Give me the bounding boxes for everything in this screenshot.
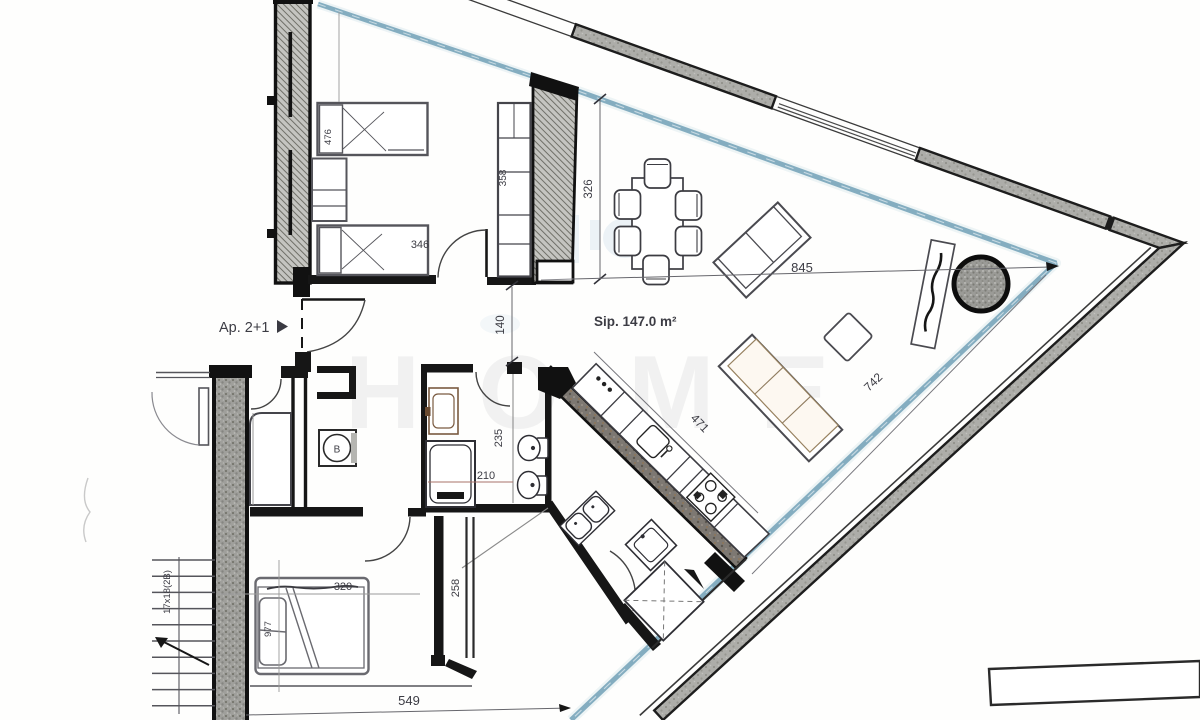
svg-text:210: 210	[477, 470, 495, 482]
svg-text:140: 140	[495, 315, 507, 334]
svg-text:258: 258	[450, 579, 462, 597]
svg-text:Sip. 147.0 m²: Sip. 147.0 m²	[594, 314, 677, 329]
svg-text:977: 977	[263, 621, 274, 637]
svg-text:549: 549	[398, 693, 420, 708]
svg-text:326: 326	[583, 179, 595, 198]
svg-text:476: 476	[323, 129, 334, 145]
svg-text:320: 320	[334, 581, 352, 593]
svg-text:235: 235	[493, 429, 505, 447]
svg-text:358: 358	[498, 169, 509, 186]
svg-text:346: 346	[411, 239, 429, 251]
svg-text:B: B	[334, 445, 341, 456]
svg-text:Ap. 2+1: Ap. 2+1	[219, 320, 269, 336]
svg-text:845: 845	[791, 260, 813, 275]
svg-text:17x18(2B): 17x18(2B)	[162, 570, 173, 614]
